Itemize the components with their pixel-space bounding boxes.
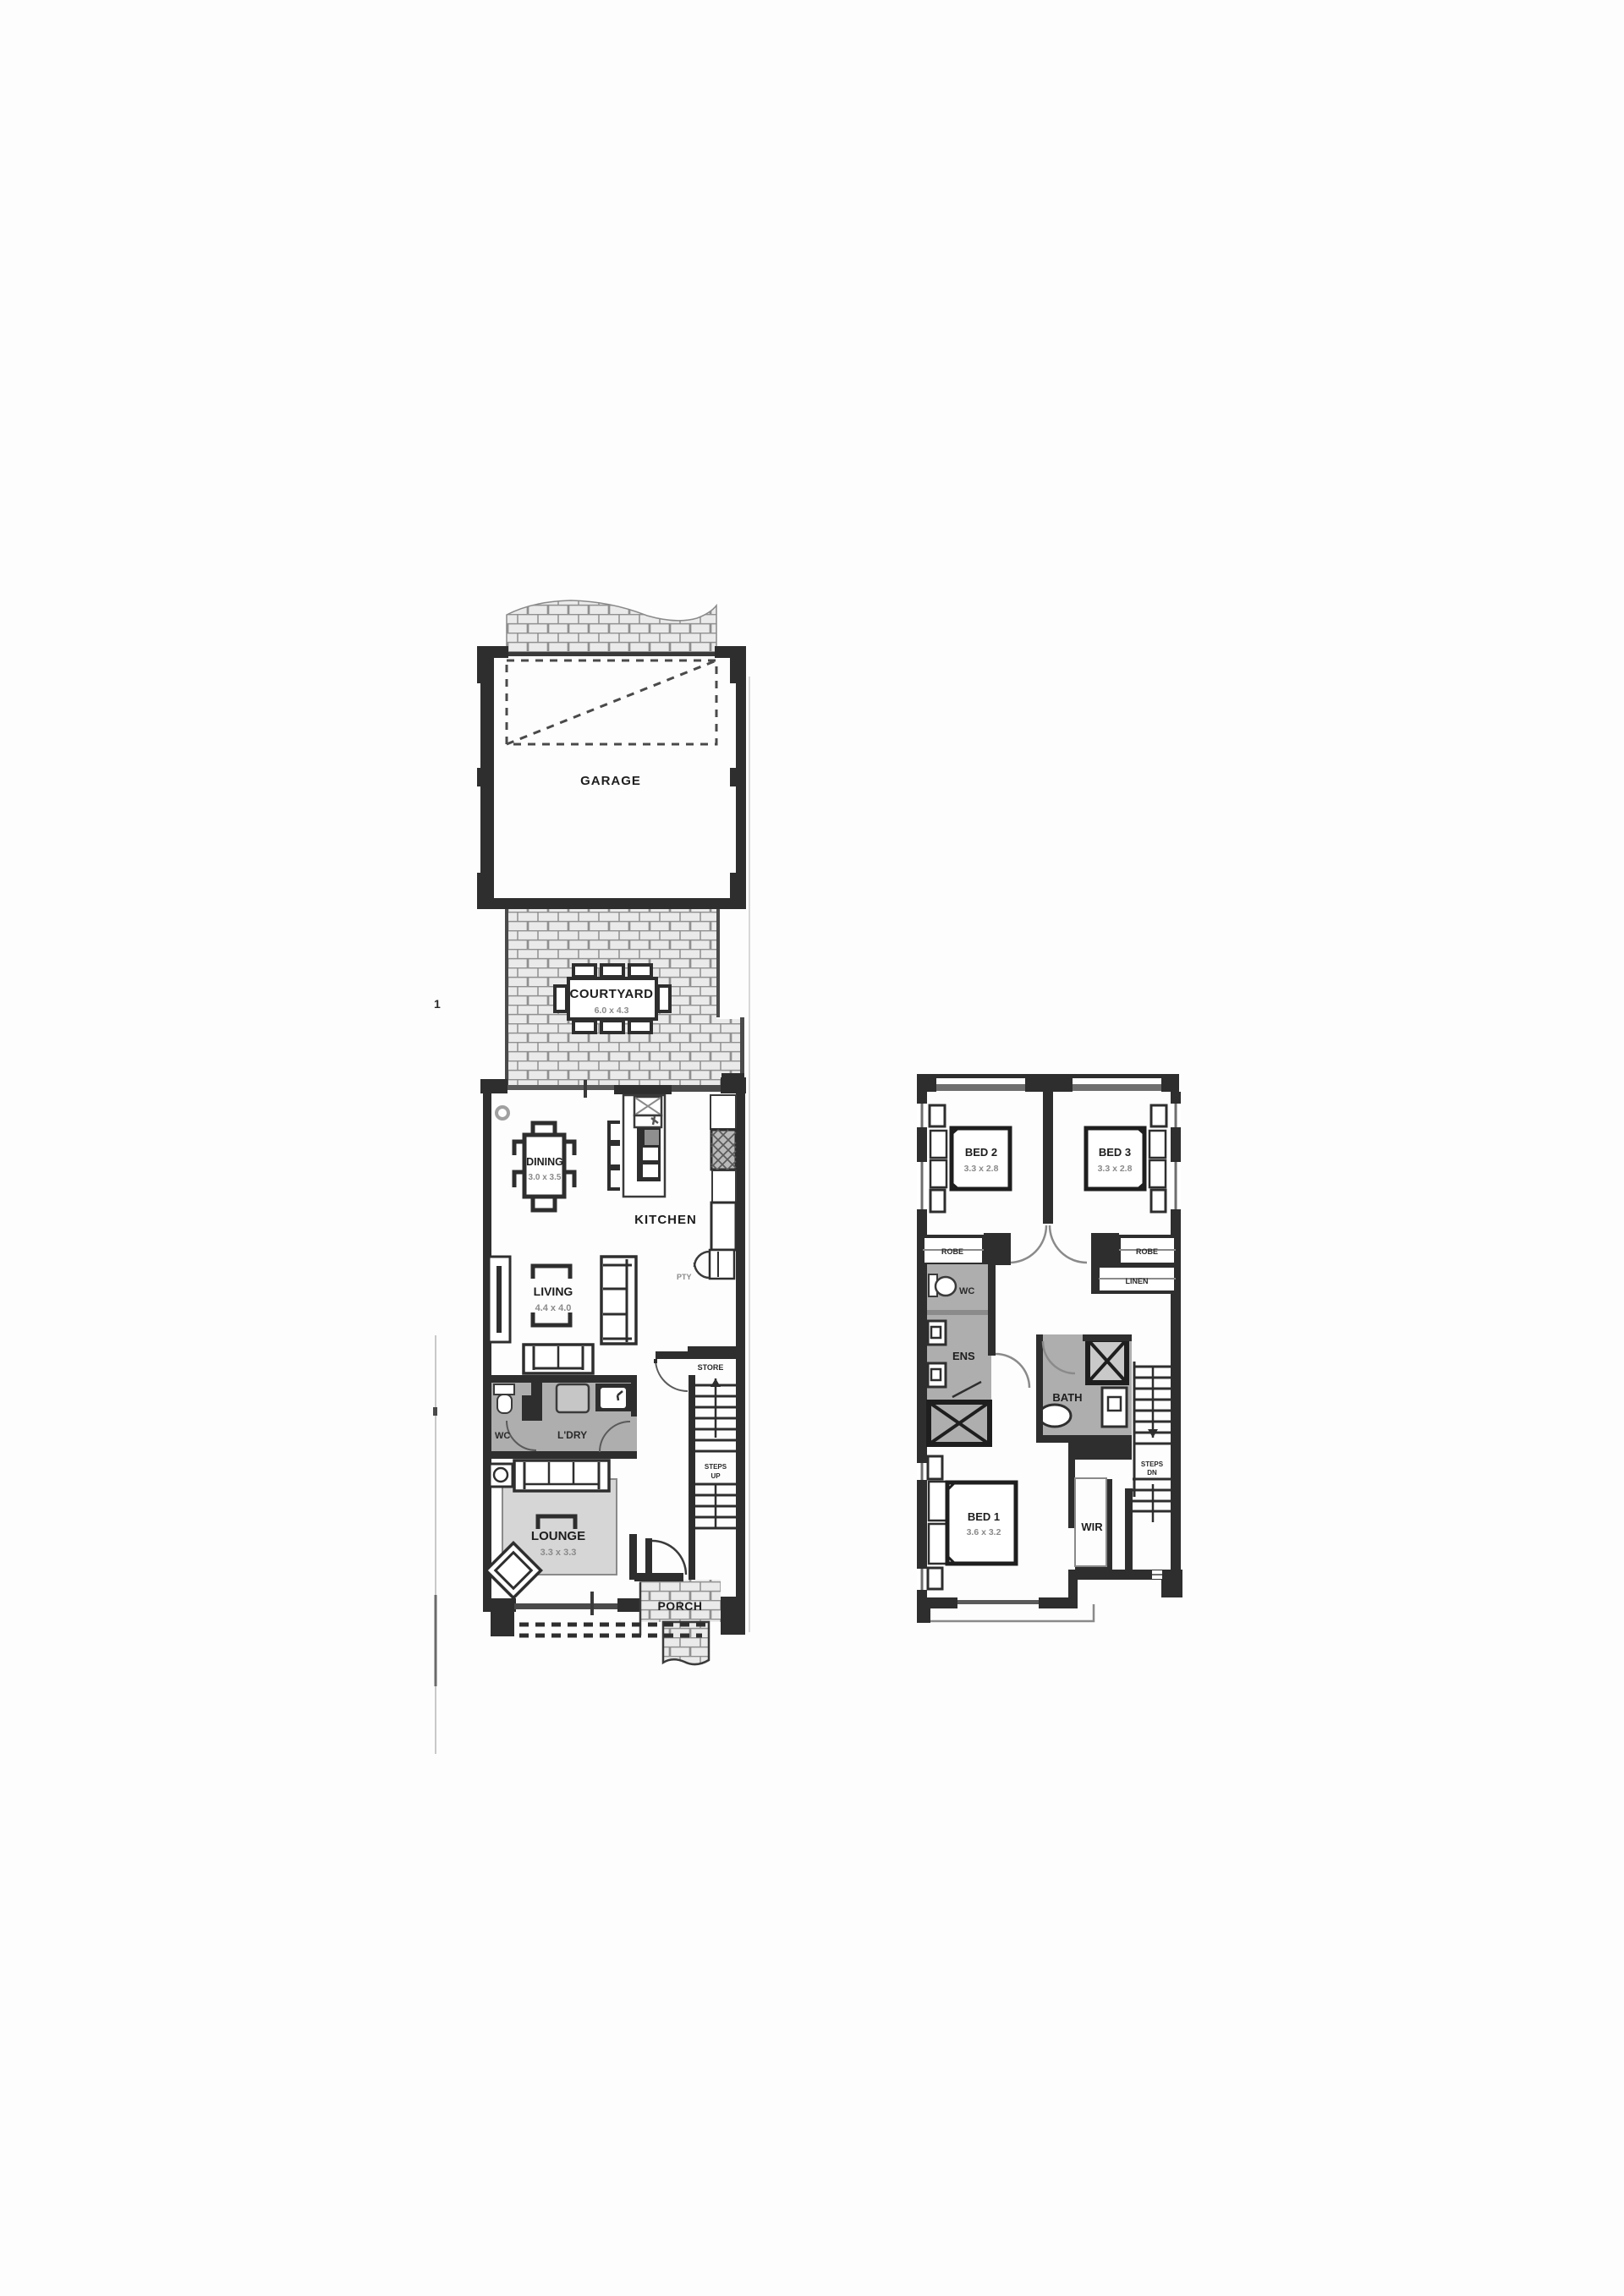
svg-text:KITCHEN: KITCHEN [634, 1213, 697, 1227]
svg-text:DINING: DINING [526, 1156, 563, 1168]
svg-text:LIVING: LIVING [534, 1285, 573, 1298]
svg-text:BATH: BATH [1052, 1391, 1082, 1404]
svg-text:ROBE: ROBE [1136, 1247, 1158, 1256]
svg-text:LOUNGE: LOUNGE [531, 1529, 585, 1543]
svg-text:ENS: ENS [952, 1350, 975, 1362]
svg-text:3.3 x 2.8: 3.3 x 2.8 [1098, 1164, 1133, 1174]
svg-text:WIR: WIR [1081, 1521, 1103, 1533]
svg-text:3.3 x 2.8: 3.3 x 2.8 [964, 1164, 999, 1174]
svg-text:BED 3: BED 3 [1099, 1146, 1131, 1159]
svg-text:STORE: STORE [698, 1363, 724, 1372]
svg-text:6.0 x 4.3: 6.0 x 4.3 [595, 1006, 629, 1016]
svg-text:PTY: PTY [677, 1273, 692, 1281]
svg-text:STEPS: STEPS [705, 1463, 727, 1471]
svg-text:1: 1 [434, 997, 441, 1011]
svg-text:WC: WC [495, 1431, 510, 1441]
svg-text:L'DRY: L'DRY [557, 1429, 587, 1441]
svg-text:GARAGE: GARAGE [580, 774, 641, 788]
svg-text:LINEN: LINEN [1126, 1277, 1149, 1285]
svg-text:3.0 x 3.5: 3.0 x 3.5 [529, 1173, 562, 1182]
svg-text:3.3 x 3.3: 3.3 x 3.3 [540, 1548, 577, 1558]
svg-text:BED 2: BED 2 [965, 1146, 997, 1159]
svg-text:DN: DN [1147, 1469, 1157, 1477]
svg-text:STEPS: STEPS [1141, 1460, 1164, 1468]
svg-text:PORCH: PORCH [657, 1599, 702, 1613]
svg-text:UP: UP [710, 1472, 721, 1480]
svg-text:WC: WC [959, 1286, 974, 1296]
svg-text:4.4 x 4.0: 4.4 x 4.0 [535, 1303, 572, 1313]
svg-text:BED 1: BED 1 [968, 1510, 1000, 1523]
svg-text:3.6 x 3.2: 3.6 x 3.2 [967, 1527, 1001, 1537]
svg-text:COURTYARD: COURTYARD [570, 987, 654, 1001]
svg-text:ROBE: ROBE [941, 1247, 963, 1256]
